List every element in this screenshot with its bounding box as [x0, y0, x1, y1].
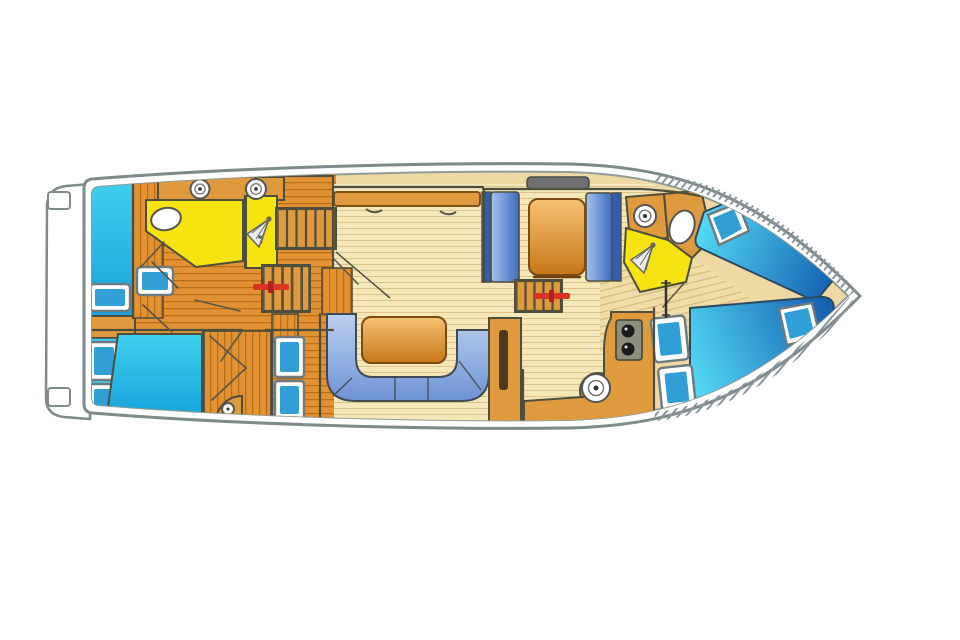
cabinet-slot	[499, 330, 508, 390]
boat-floor-plan-canvas	[0, 0, 960, 640]
aft-deck-bench	[87, 180, 133, 320]
sink-icon	[191, 180, 210, 199]
dinette-bench	[586, 193, 612, 281]
cleat-icon	[48, 192, 70, 209]
transom-seat-cushion	[137, 267, 173, 295]
stair-landing	[322, 268, 352, 314]
drain-icon	[258, 235, 262, 239]
dinette-bench	[491, 192, 519, 282]
sink-icon	[246, 179, 266, 199]
sink-icon	[582, 374, 610, 402]
cleat-icon	[48, 388, 70, 406]
dinette-table	[529, 199, 585, 275]
salon-table	[362, 317, 446, 363]
boat-floor-plan	[0, 0, 960, 640]
sink-icon	[634, 205, 656, 227]
sideboard	[334, 192, 480, 206]
bench-back	[612, 193, 621, 281]
stove-icon	[616, 320, 642, 360]
aft-companionway-stairs	[276, 208, 336, 249]
shelf-cushions	[275, 337, 304, 419]
overhead-hatch	[527, 177, 589, 189]
